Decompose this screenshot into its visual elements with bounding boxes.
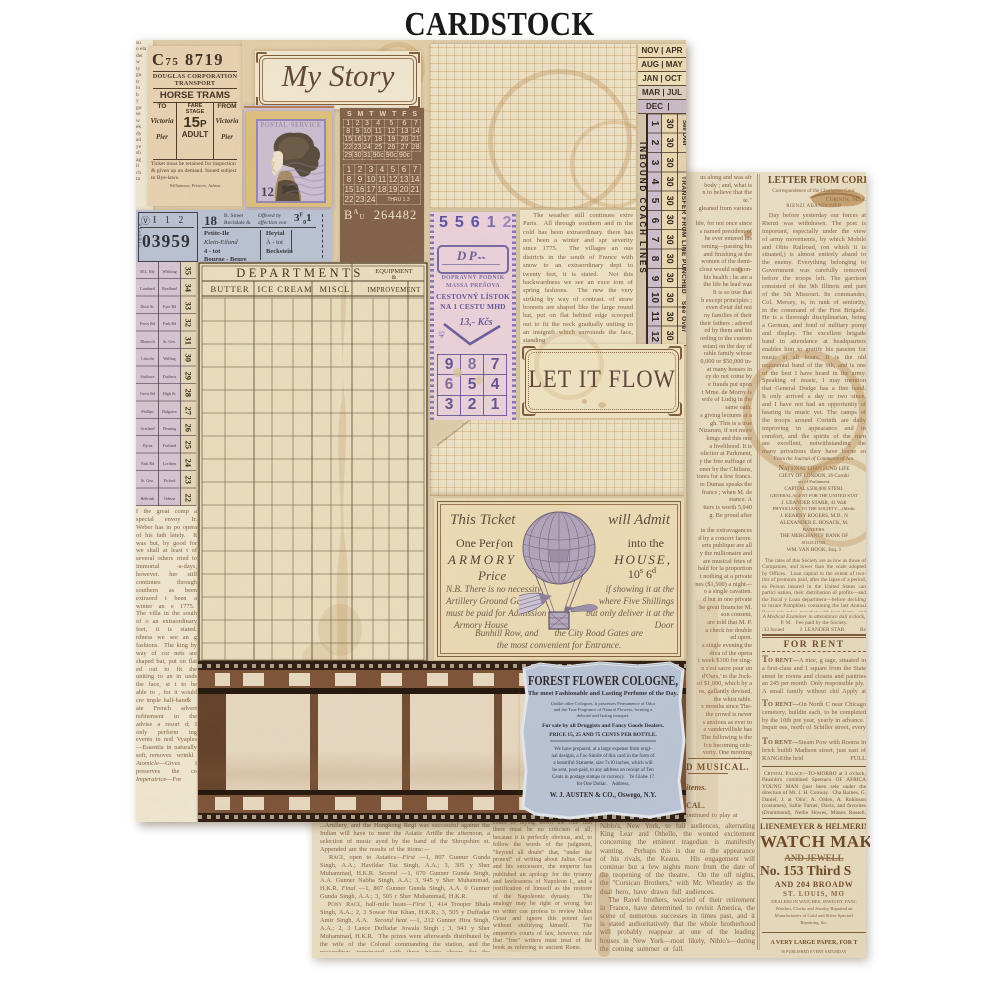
svg-text:BUTTER: BUTTER	[210, 284, 249, 294]
svg-text:We have prepared, at a large e: We have prepared, at a large expense fro…	[554, 747, 652, 752]
svg-text:The most Fashionable and Lasti: The most Fashionable and Lasting Perfume…	[528, 690, 678, 697]
svg-text:be sent, post-paid, to any add: be sent, post-paid, to any address on re…	[552, 768, 654, 773]
svg-text:nal designs, a Fac-Simile of t: nal designs, a Fac-Simile of this card i…	[552, 754, 655, 759]
svg-text:13,- Kčs: 13,- Kčs	[459, 317, 492, 328]
svg-text:MISCL: MISCL	[320, 284, 351, 294]
svg-text:Cents in postage stamps or cur: Cents in postage stamps or currency. Ye …	[552, 775, 655, 780]
svg-text:45: 45	[437, 330, 446, 339]
svg-text:FOREST FLOWER COLOGNE,: FOREST FLOWER COLOGNE,	[528, 673, 678, 688]
svg-text:DEPARTMENTS: DEPARTMENTS	[236, 266, 364, 280]
svg-text:W. J. AUSTEN & CO., Oswego, N.: W. J. AUSTEN & CO., Oswego, N.Y.	[550, 792, 657, 799]
svg-text:EQUIPMENT: EQUIPMENT	[375, 268, 413, 275]
svg-text:&: &	[392, 275, 397, 281]
svg-text:ICE CREAM: ICE CREAM	[257, 284, 312, 294]
svg-text:for One Dollar. Address,: for One Dollar. Address,	[576, 782, 629, 787]
svg-text:IMPROVEMENT: IMPROVEMENT	[367, 287, 421, 294]
svg-text:delicate and lasting bouquet.: delicate and lasting bouquet.	[577, 713, 630, 718]
svg-text:PRICE 15, 25 AND 75 CENTS PER: PRICE 15, 25 AND 75 CENTS PER BOTTLE.	[549, 732, 657, 738]
svg-text:a beautiful Statuette, size 7x: a beautiful Statuette, size 7x10 inches,…	[553, 761, 653, 766]
svg-text:For sale by all Druggists and: For sale by all Druggists and Fancy Good…	[542, 723, 664, 729]
